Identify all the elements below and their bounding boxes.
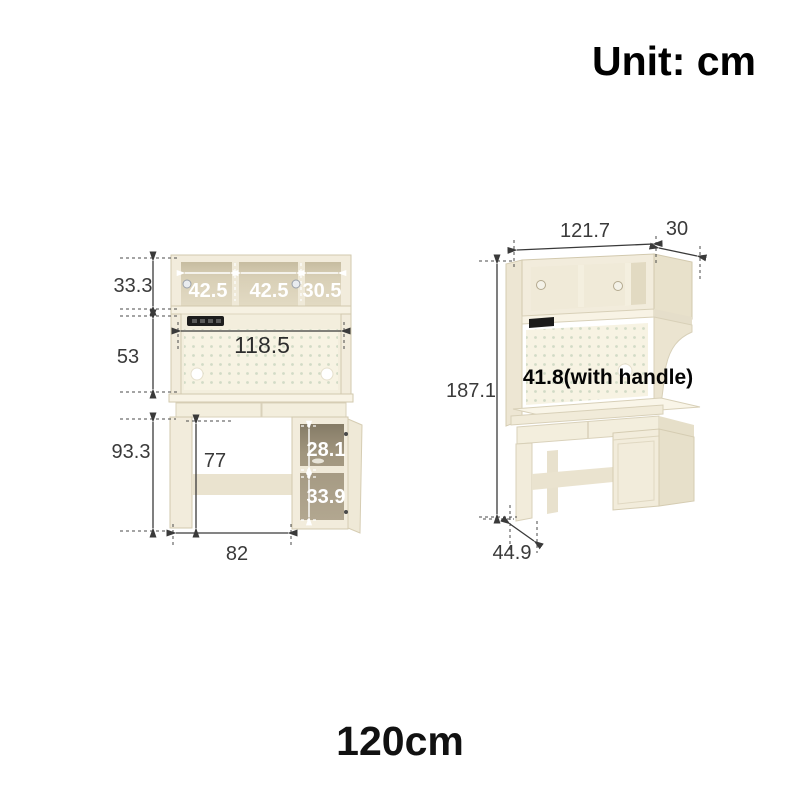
door-knob-icon	[614, 282, 623, 291]
hutch-side-right	[341, 314, 351, 395]
dim-desk-height: 93.3	[112, 419, 176, 531]
dim-label-hutch-height: 33.3	[114, 275, 153, 297]
hinge-icon	[344, 432, 348, 436]
light-icon	[191, 368, 203, 380]
cabinet-shelf	[300, 466, 344, 473]
side-hutch-side-face	[654, 254, 692, 319]
power-strip-socket	[208, 319, 213, 323]
dim-label-pegboard-width: 118.5	[234, 332, 290, 358]
dim-label-cabinet-top: 28.1	[307, 439, 346, 461]
door-knob-icon	[537, 281, 546, 290]
dim-label-shelf-width-1: 42.5	[189, 280, 228, 302]
side-crossbar	[532, 467, 613, 490]
diagram-canvas: 33.3 53 93.3	[0, 0, 800, 800]
side-view-diagram: 121.7 30 187.1 41.8(with handle)	[446, 218, 700, 564]
side-left-panel	[506, 260, 522, 426]
dim-label-legroom-width: 82	[226, 543, 248, 565]
dim-legroom-width: 82	[173, 524, 291, 565]
side-panel-taper	[654, 317, 692, 409]
front-view-diagram: 33.3 53 93.3	[112, 255, 362, 565]
hinge-icon	[344, 510, 348, 514]
side-cabinet-side	[659, 429, 694, 506]
side-front-leg	[516, 443, 532, 521]
door-knob-icon	[292, 280, 300, 288]
dim-label-cabinet-bottom: 33.9	[307, 486, 346, 508]
dim-label-desk-depth-note: 41.8(with handle)	[523, 366, 693, 389]
dim-hutch-height: 33.3	[114, 258, 178, 309]
side-pegboard	[526, 323, 648, 405]
hutch-shelf-board	[171, 306, 351, 314]
desktop	[169, 394, 353, 402]
shelf-divider	[625, 263, 631, 306]
light-icon	[321, 368, 333, 380]
power-strip-socket	[192, 319, 197, 323]
power-strip-socket	[216, 319, 221, 323]
shelf-divider	[578, 265, 584, 307]
dim-back-panel-height: 53	[117, 316, 178, 392]
dim-label-total-width: 121.7	[560, 220, 610, 242]
dim-label-back-panel-height: 53	[117, 346, 139, 368]
desk-leg-left	[170, 417, 192, 528]
dim-label-desk-height: 93.3	[112, 441, 151, 463]
power-strip-socket	[200, 319, 205, 323]
product-dimension-diagram: Unit: cm 120cm	[0, 0, 800, 800]
cabinet-open-door	[348, 419, 362, 533]
drawer-left	[176, 403, 261, 417]
dim-label-hutch-depth: 30	[666, 218, 688, 240]
dim-label-shelf-width-3: 30.5	[303, 280, 342, 302]
side-open-compartment	[631, 262, 646, 305]
dim-label-base-depth: 44.9	[493, 542, 532, 564]
dim-label-shelf-width-2: 42.5	[250, 280, 289, 302]
hutch-side-left	[171, 314, 181, 395]
drawer-right	[262, 403, 346, 417]
dim-label-legroom-height: 77	[204, 450, 226, 472]
crossbar	[192, 474, 292, 495]
dim-label-total-height: 187.1	[446, 380, 496, 402]
